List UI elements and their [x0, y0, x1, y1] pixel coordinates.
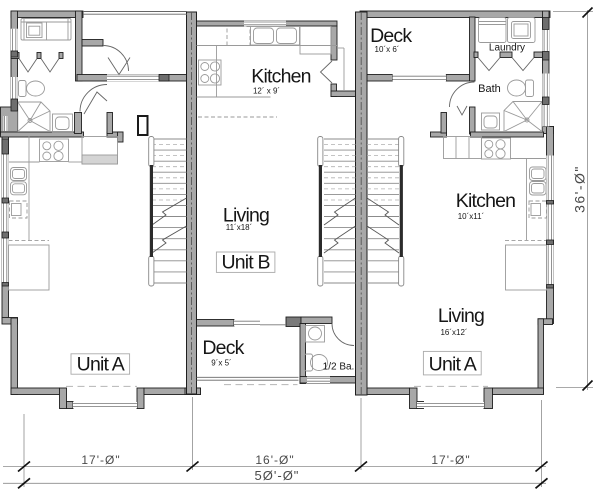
- svg-text:10´x11´: 10´x11´: [458, 212, 485, 221]
- svg-text:9´x 5´: 9´x 5´: [211, 359, 231, 368]
- svg-text:Deck: Deck: [202, 337, 244, 359]
- svg-text:17'-Ø": 17'-Ø": [81, 453, 120, 467]
- svg-text:Kitchen: Kitchen: [456, 190, 515, 212]
- svg-text:Deck: Deck: [370, 25, 412, 47]
- svg-text:36'-Ø": 36'-Ø": [572, 165, 588, 213]
- svg-text:Laundry: Laundry: [489, 43, 525, 54]
- svg-text:11´x18´: 11´x18´: [226, 223, 253, 232]
- svg-text:16'-Ø": 16'-Ø": [255, 453, 294, 467]
- svg-text:Unit A: Unit A: [429, 353, 477, 375]
- svg-text:16´x12´: 16´x12´: [440, 328, 467, 337]
- svg-text:10´x 6´: 10´x 6´: [375, 45, 400, 54]
- svg-text:1/2 Ba.: 1/2 Ba.: [323, 362, 355, 373]
- svg-text:Bath: Bath: [478, 83, 501, 95]
- svg-text:Kitchen: Kitchen: [251, 65, 310, 87]
- svg-text:12´ x 9´: 12´ x 9´: [253, 87, 280, 96]
- svg-text:Living: Living: [438, 305, 484, 327]
- svg-text:Unit B: Unit B: [221, 252, 269, 274]
- svg-text:Unit A: Unit A: [77, 353, 125, 375]
- svg-text:17'-Ø": 17'-Ø": [431, 453, 470, 467]
- svg-text:5Ø'-Ø": 5Ø'-Ø": [255, 468, 300, 483]
